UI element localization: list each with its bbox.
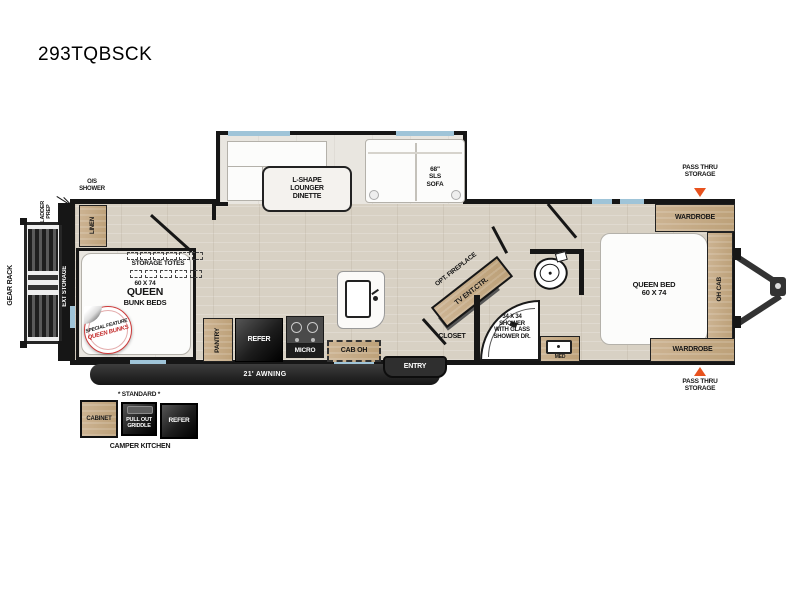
gear-rack-label: GEAR RACK: [7, 265, 15, 306]
storage-totes-row: [130, 270, 202, 278]
bath-faucet: [557, 345, 560, 348]
pass-thru-bottom-arrow: [694, 367, 706, 376]
camper-kitchen-cabinet: CABINET: [80, 400, 118, 438]
camper-kitchen-refer: REFER: [160, 403, 198, 439]
floorplan-canvas: 293TQBSCK EXT STORAGE L-SHAPE LOUNGER DI…: [0, 0, 800, 600]
knob: [311, 338, 315, 342]
refer-label: REFER: [248, 336, 271, 344]
queen-bed-label: QUEEN BED 60 X 74: [633, 281, 676, 298]
dinette-table: L-SHAPE LOUNGER DINETTE: [262, 166, 352, 212]
kitchen-sink: [345, 280, 371, 318]
slide-window: [228, 131, 290, 136]
ext-storage-label: EXT STORAGE: [62, 266, 69, 307]
faucet: [373, 296, 378, 301]
bath-wall: [579, 249, 584, 295]
refrigerator: REFER: [235, 318, 283, 362]
wardrobe-bottom-label: WARDROBE: [672, 346, 712, 354]
gear-rack-post: [20, 218, 27, 225]
queen-bed: QUEEN BED 60 X 74: [600, 233, 708, 345]
burner: [291, 322, 302, 333]
pass-thru-top-arrow: [694, 188, 706, 197]
shower-wall: [474, 295, 480, 362]
ladder-prep-label: LADDER PREP: [40, 201, 52, 223]
oh-cab-label: OH CAB: [716, 277, 723, 301]
sofa-backrest-line: [368, 152, 462, 154]
page-title: 293TQBSCK: [38, 44, 152, 66]
griddle-icon: [127, 406, 153, 414]
entry-step: ENTRY: [383, 356, 447, 378]
ck-griddle-label: PULL OUT GRIDDLE: [126, 417, 152, 429]
hitch-coupler: [770, 277, 786, 296]
dinette-bench: [227, 141, 327, 167]
wall-stub: [212, 202, 216, 220]
overhead-cabinet: OH CAB: [707, 232, 733, 346]
sofa-label: 68" SLS SOFA: [427, 166, 444, 188]
pull-out-griddle: PULL OUT GRIDDLE: [121, 402, 157, 436]
bath-vanity: MED: [540, 336, 580, 362]
gear-rack: [24, 222, 62, 344]
dinette-label: L-SHAPE LOUNGER DINETTE: [290, 177, 324, 200]
sofa-armrest: [369, 190, 379, 200]
kitchen-island: [337, 271, 385, 329]
os-shower-label: O/S SHOWER: [70, 179, 114, 192]
window: [592, 199, 612, 204]
hitch-frame-bar: [735, 294, 782, 327]
shower-label: 34 X 34 SHOWER WITH GLASS SHOWER DR.: [484, 314, 540, 341]
linen-cabinet: LINEN: [79, 205, 107, 247]
window: [70, 306, 75, 328]
gear-rack-post: [20, 341, 27, 348]
cooktop: [286, 316, 324, 344]
awning-label: 21' AWNING: [244, 371, 287, 379]
micro-label: MICRO: [295, 347, 316, 354]
linen-label: LINEN: [90, 217, 97, 234]
med-label: MED: [546, 355, 574, 361]
pantry: PANTRY: [203, 318, 233, 362]
burner: [307, 322, 318, 333]
faucet-handle: [371, 289, 378, 295]
wardrobe-top: WARDROBE: [655, 204, 735, 232]
ck-cabinet-label: CABINET: [86, 416, 111, 423]
pantry-label: PANTRY: [214, 328, 221, 353]
slide-window: [396, 131, 454, 136]
window: [620, 199, 644, 204]
gear-rack-post: [58, 341, 65, 348]
hitch-mount: [733, 248, 741, 260]
pass-thru-bottom-label: PASS THRU STORAGE: [664, 378, 736, 393]
wardrobe-top-label: WARDROBE: [675, 214, 715, 222]
special-feature-badge: SPECIAL FEATURE QUEEN BUNKS: [84, 306, 132, 354]
microwave: MICRO: [286, 344, 324, 358]
cab-oh-label: CAB OH: [341, 347, 367, 355]
wardrobe-bottom: WARDROBE: [650, 338, 735, 362]
gear-rack-post: [58, 218, 65, 225]
storage-totes-row: [127, 252, 203, 260]
entry-label: ENTRY: [404, 363, 426, 371]
standard-label: * STANDARD *: [104, 391, 174, 398]
pass-thru-top-label: PASS THRU STORAGE: [664, 164, 736, 179]
camper-kitchen-label: CAMPER KITCHEN: [94, 443, 186, 451]
knob: [295, 338, 299, 342]
hitch-mount: [733, 316, 741, 328]
cab-overhead: CAB OH: [327, 340, 381, 362]
storage-totes-label: STORAGE TOTES: [122, 260, 194, 267]
ck-refer-label: REFER: [168, 417, 189, 424]
